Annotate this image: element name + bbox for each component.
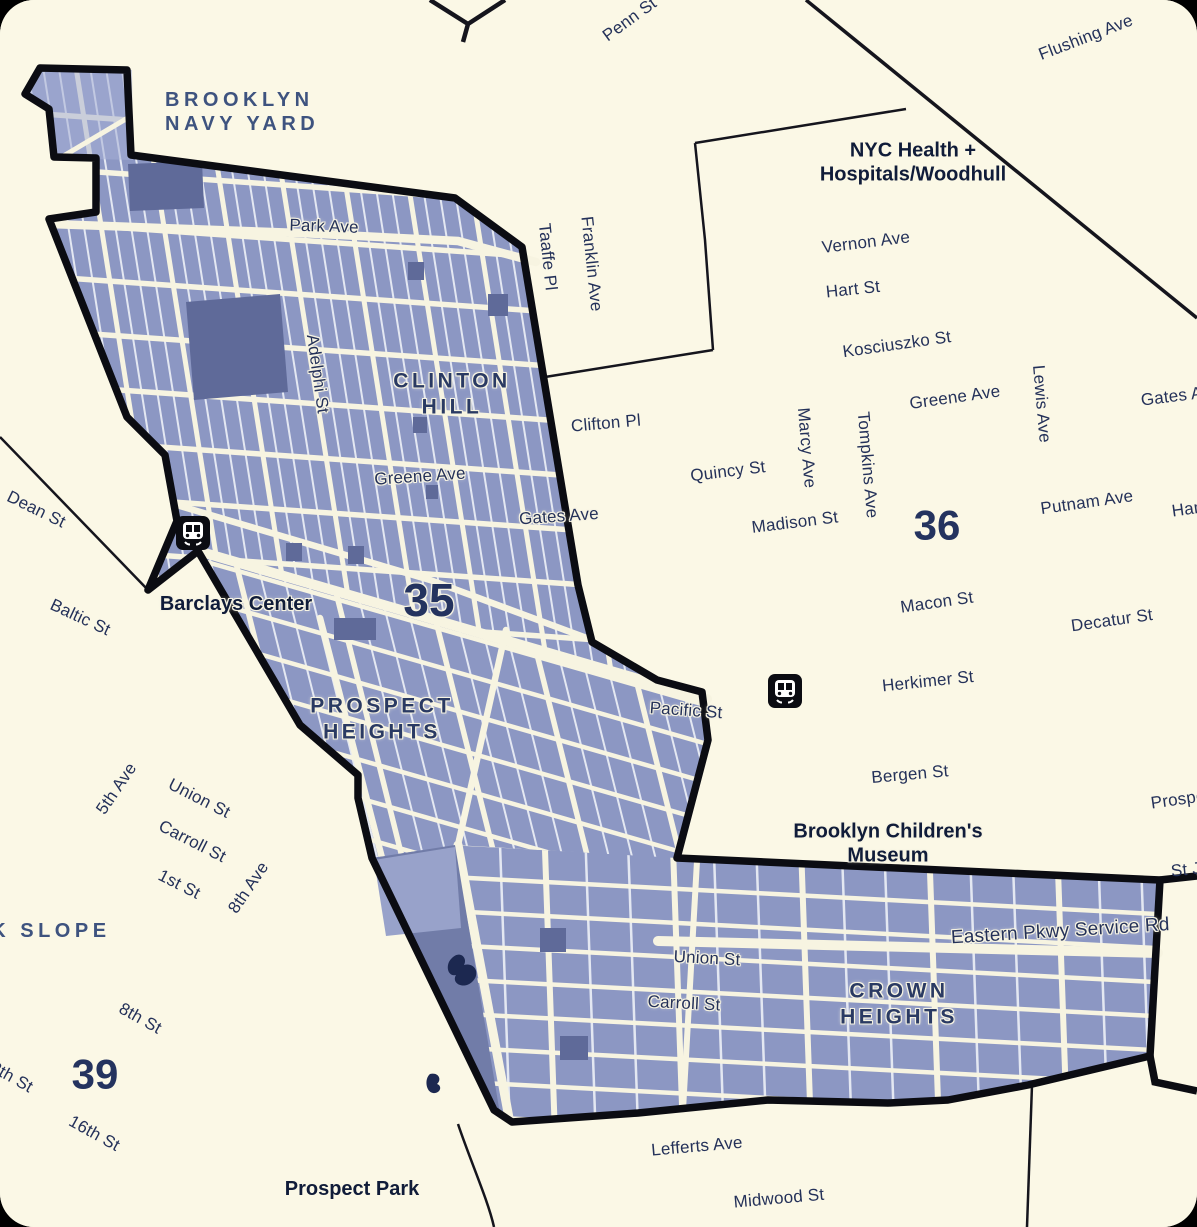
- subway-station-icon[interactable]: [768, 674, 802, 708]
- screenshot-frame: BROOKLYN NAVY YARD CLINTON HILL PROSPECT…: [0, 0, 1197, 1227]
- district-number-36: 36: [914, 499, 961, 550]
- poi-brooklyn-childrens-museum: Brooklyn Children's Museum: [793, 820, 982, 869]
- fort-greene-park: [186, 294, 288, 400]
- poi-woodhull-hospital: NYC Health + Hospitals/Woodhull: [820, 139, 1006, 188]
- neighborhood-park-slope: PARK SLOPE: [0, 919, 111, 943]
- subway-station-icon[interactable]: [176, 516, 210, 550]
- neighborhood-crown-heights: CROWN HEIGHTS: [840, 978, 958, 1029]
- poi-barclays-center: Barclays Center: [160, 592, 312, 616]
- commodore-barry-park: [128, 161, 204, 211]
- neighborhood-clinton-hill: CLINTON HILL: [393, 368, 510, 419]
- district-number-35: 35: [403, 572, 454, 628]
- district-map[interactable]: BROOKLYN NAVY YARD CLINTON HILL PROSPECT…: [0, 0, 1197, 1227]
- street-label-carroll-st: Carroll St: [647, 992, 721, 1017]
- district-number-39: 39: [72, 1048, 119, 1099]
- street-label-union-st: Union St: [673, 947, 741, 971]
- street-label-park-ave: Park Ave: [289, 215, 359, 238]
- neighborhood-brooklyn-navy-yard: BROOKLYN NAVY YARD: [165, 88, 319, 137]
- neighborhood-prospect-heights: PROSPECT HEIGHTS: [310, 693, 454, 744]
- poi-prospect-park: Prospect Park: [285, 1177, 420, 1201]
